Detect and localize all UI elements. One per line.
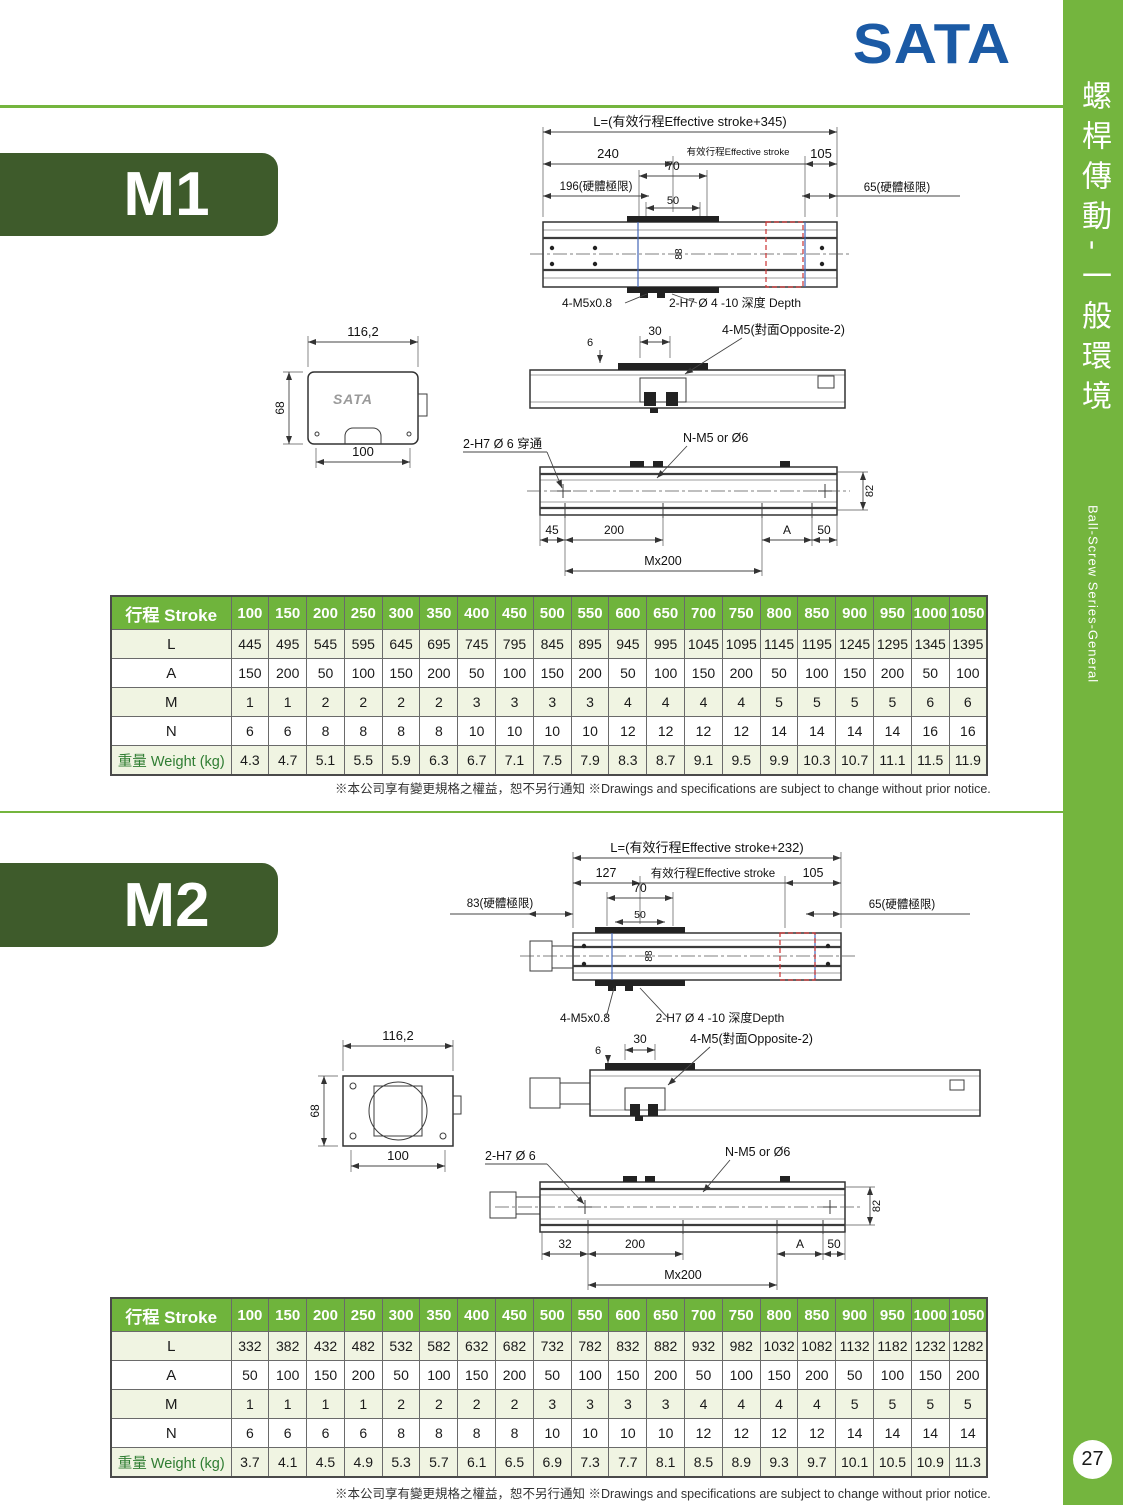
table-cell: 200	[798, 1361, 836, 1390]
table-cell: 100	[874, 1361, 912, 1390]
table-row: A150200501001502005010015020050100150200…	[111, 659, 987, 688]
table-cell: 100	[420, 1361, 458, 1390]
table-cell: 3	[533, 1390, 571, 1419]
m2-spec-table: 行程 Stroke1001502002503003504004505005506…	[110, 1297, 988, 1478]
table-cell: 4.1	[269, 1448, 307, 1478]
table-cell: 1145	[760, 630, 798, 659]
table-cell: 8.1	[647, 1448, 685, 1478]
table-row: 重量 Weight (kg)3.74.14.54.95.35.76.16.56.…	[111, 1448, 987, 1478]
table-cell: 2	[382, 688, 420, 717]
thread-callout: 4-M5x0.8	[560, 1011, 610, 1025]
m2-end-body	[343, 1076, 461, 1146]
table-cell: 895	[571, 630, 609, 659]
table-header-cell: 550	[571, 596, 609, 630]
dim-label: 82	[864, 485, 876, 497]
catalog-page: SATA M1 L=(有效行程Effective stroke+345)	[0, 0, 1123, 1505]
table-header-cell: 450	[496, 1298, 534, 1332]
table-cell: 495	[269, 630, 307, 659]
table-cell: 5	[836, 688, 874, 717]
table-cell: 5	[949, 1390, 987, 1419]
table-cell: 6	[231, 717, 269, 746]
dim-label: 50	[667, 195, 679, 207]
dim-label: 68	[308, 1104, 322, 1118]
table-cell: 745	[458, 630, 496, 659]
table-cell: 1182	[874, 1332, 912, 1361]
table-cell: 4.9	[344, 1448, 382, 1478]
m1-side-view-drawing: 6 30 4-M5(對面Opposite-2)	[500, 318, 970, 430]
table-cell: 6	[307, 1419, 345, 1448]
table-cell: 50	[836, 1361, 874, 1390]
row-label: A	[111, 1361, 231, 1390]
m1-front-body	[530, 216, 850, 298]
table-cell: 6.1	[458, 1448, 496, 1478]
m2-side-view-drawing: 6 30 4-M5(對面Opposite-2)	[520, 1030, 990, 1140]
hole-callout: 2-H7 Ø 4 -10 深度Depth	[656, 1010, 785, 1025]
table-header-cell: 650	[647, 596, 685, 630]
table-cell: 445	[231, 630, 269, 659]
table-cell: 10	[647, 1419, 685, 1448]
table-cell: 1232	[911, 1332, 949, 1361]
hole-callout: 2-H7 Ø 6	[485, 1149, 536, 1163]
table-cell: 2	[420, 688, 458, 717]
table-cell: 2	[344, 688, 382, 717]
table-cell: 200	[344, 1361, 382, 1390]
table-cell: 432	[307, 1332, 345, 1361]
table-cell: 10	[533, 1419, 571, 1448]
table-header-cell: 650	[647, 1298, 685, 1332]
table-cell: 5	[760, 688, 798, 717]
table-cell: 7.3	[571, 1448, 609, 1478]
table-cell: 100	[647, 659, 685, 688]
table-cell: 6	[344, 1419, 382, 1448]
row-label: N	[111, 1419, 231, 1448]
table-cell: 545	[307, 630, 345, 659]
table-cell: 50	[609, 659, 647, 688]
table-header-cell: 750	[722, 596, 760, 630]
table-cell: 14	[874, 1419, 912, 1448]
table-cell: 4	[609, 688, 647, 717]
hole-callout: N-M5 or Ø6	[683, 431, 748, 445]
table-cell: 8	[458, 1419, 496, 1448]
dim-label: 50	[634, 909, 646, 921]
table-cell: 7.5	[533, 746, 571, 776]
table-header-cell: 300	[382, 1298, 420, 1332]
dim-label: Mx200	[664, 1268, 702, 1282]
m2-end-dimensions: 116,2 68 100	[308, 1028, 453, 1172]
table-cell: 4	[798, 1390, 836, 1419]
row-label: M	[111, 1390, 231, 1419]
table-cell: 50	[382, 1361, 420, 1390]
table-cell: 4	[760, 1390, 798, 1419]
table-cell: 100	[722, 1361, 760, 1390]
table-header-cell: 1050	[949, 1298, 987, 1332]
table-cell: 7.7	[609, 1448, 647, 1478]
table-cell: 200	[722, 659, 760, 688]
dim-label: 105	[803, 866, 824, 880]
table-cell: 12	[760, 1419, 798, 1448]
table-cell: 1	[269, 1390, 307, 1419]
table-cell: 732	[533, 1332, 571, 1361]
table-cell: 14	[911, 1419, 949, 1448]
table-cell: 1195	[798, 630, 836, 659]
table-cell: 16	[949, 717, 987, 746]
table-header-cell: 850	[798, 1298, 836, 1332]
dim-label: 65(硬體極限)	[869, 897, 936, 911]
table-header-cell: 900	[836, 1298, 874, 1332]
model-badge-m2: M2	[0, 863, 278, 947]
thread-callout: 4-M5(對面Opposite-2)	[690, 1032, 813, 1046]
table-cell: 6.5	[496, 1448, 534, 1478]
model-badge-m1: M1	[0, 153, 278, 236]
table-cell: 150	[836, 659, 874, 688]
dim-label: 100	[352, 444, 374, 459]
table-header-cell: 900	[836, 596, 874, 630]
table-cell: 8.9	[722, 1448, 760, 1478]
table-header-label: 行程 Stroke	[111, 1298, 231, 1332]
table-cell: 200	[874, 659, 912, 688]
table-cell: 7.9	[571, 746, 609, 776]
table-row: N6688881010101012121212141414141616	[111, 717, 987, 746]
table-cell: 3	[496, 688, 534, 717]
table-cell: 9.9	[760, 746, 798, 776]
table-cell: 4	[722, 1390, 760, 1419]
table-cell: 1395	[949, 630, 987, 659]
m1-bottom-body	[527, 461, 850, 518]
table-cell: 2	[307, 688, 345, 717]
table-cell: 1	[344, 1390, 382, 1419]
table-cell: 3	[533, 688, 571, 717]
table-header-row: 行程 Stroke1001502002503003504004505005506…	[111, 596, 987, 630]
embossed-logo: SATA	[333, 391, 373, 407]
table-cell: 8	[420, 1419, 458, 1448]
dim-label: L=(有效行程Effective stroke+345)	[593, 114, 786, 129]
table-cell: 100	[798, 659, 836, 688]
table-header-cell: 700	[685, 1298, 723, 1332]
table-cell: 50	[760, 659, 798, 688]
table-cell: 2	[382, 1390, 420, 1419]
table-cell: 5.1	[307, 746, 345, 776]
table-cell: 50	[685, 1361, 723, 1390]
table-cell: 845	[533, 630, 571, 659]
table-cell: 200	[496, 1361, 534, 1390]
header-rule	[0, 105, 1063, 108]
table-cell: 50	[911, 659, 949, 688]
dim-label: 70	[633, 881, 647, 895]
table-header-cell: 700	[685, 596, 723, 630]
table-cell: 632	[458, 1332, 496, 1361]
dim-label: 200	[625, 1237, 645, 1251]
page-number-badge: 27	[1073, 1440, 1112, 1479]
table-cell: 10.1	[836, 1448, 874, 1478]
table-cell: 50	[458, 659, 496, 688]
table-header-cell: 250	[344, 596, 382, 630]
table-cell: 6.7	[458, 746, 496, 776]
table-cell: 4	[722, 688, 760, 717]
table-cell: 3	[647, 1390, 685, 1419]
table-cell: 10	[496, 717, 534, 746]
dim-label: L=(有效行程Effective stroke+232)	[610, 840, 803, 855]
dim-label: 116,2	[382, 1028, 414, 1043]
dim-label: 50	[827, 1237, 841, 1251]
table-header-cell: 1050	[949, 596, 987, 630]
table-header-cell: 1000	[911, 596, 949, 630]
table-cell: 6.9	[533, 1448, 571, 1478]
dim-label: 65(硬體極限)	[864, 180, 931, 194]
table-cell: 8	[344, 717, 382, 746]
table-cell: 5	[874, 688, 912, 717]
table-cell: 10.3	[798, 746, 836, 776]
table-cell: 8	[382, 717, 420, 746]
table-row: 重量 Weight (kg)4.34.75.15.55.96.36.77.17.…	[111, 746, 987, 776]
table-cell: 982	[722, 1332, 760, 1361]
m1-front-view-drawing: L=(有效行程Effective stroke+345) 240 有效行程Eff…	[435, 112, 975, 312]
table-cell: 100	[269, 1361, 307, 1390]
dim-label: 116,2	[347, 324, 379, 339]
thread-callout: 4-M5(對面Opposite-2)	[722, 323, 845, 337]
table-cell: 10	[571, 1419, 609, 1448]
table-cell: 832	[609, 1332, 647, 1361]
table-cell: 5.5	[344, 746, 382, 776]
table-cell: 200	[647, 1361, 685, 1390]
table-header-cell: 350	[420, 1298, 458, 1332]
table-cell: 482	[344, 1332, 382, 1361]
table-row: M11112222333344445555	[111, 1390, 987, 1419]
table-cell: 9.5	[722, 746, 760, 776]
table-header-cell: 950	[874, 596, 912, 630]
table-row: M11222233334444555566	[111, 688, 987, 717]
dim-label: Mx200	[644, 554, 682, 568]
table-cell: 932	[685, 1332, 723, 1361]
m1-bottom-dimensions: 2-H7 Ø 6 穿通 N-M5 or Ø6 45 200 A 50 Mx200…	[463, 431, 876, 576]
table-cell: 200	[269, 659, 307, 688]
table-cell: 12	[685, 1419, 723, 1448]
table-cell: 16	[911, 717, 949, 746]
table-cell: 795	[496, 630, 534, 659]
table-header-cell: 950	[874, 1298, 912, 1332]
side-tab: 螺桿傳動-一般環境 Ball-Screw Series-General 27	[1063, 0, 1123, 1505]
table-header-cell: 400	[458, 1298, 496, 1332]
hole-callout: 2-H7 Ø 6 穿通	[463, 436, 543, 451]
table-cell: 6	[911, 688, 949, 717]
table-cell: 1032	[760, 1332, 798, 1361]
table-cell: 5.7	[420, 1448, 458, 1478]
table-cell: 1282	[949, 1332, 987, 1361]
table-cell: 10	[571, 717, 609, 746]
table-header-cell: 600	[609, 596, 647, 630]
row-label: N	[111, 717, 231, 746]
table-cell: 882	[647, 1332, 685, 1361]
table-cell: 50	[307, 659, 345, 688]
table-cell: 532	[382, 1332, 420, 1361]
row-label: A	[111, 659, 231, 688]
dim-label: A	[796, 1237, 804, 1251]
table-cell: 1082	[798, 1332, 836, 1361]
table-cell: 8.5	[685, 1448, 723, 1478]
table-header-cell: 600	[609, 1298, 647, 1332]
table-cell: 1	[307, 1390, 345, 1419]
table-cell: 11.3	[949, 1448, 987, 1478]
table-cell: 8	[420, 717, 458, 746]
table-cell: 1345	[911, 630, 949, 659]
table-cell: 150	[533, 659, 571, 688]
table-cell: 12	[798, 1419, 836, 1448]
table-cell: 595	[344, 630, 382, 659]
table-cell: 382	[269, 1332, 307, 1361]
dim-label: 32	[558, 1237, 572, 1251]
table-cell: 4.3	[231, 746, 269, 776]
table-cell: 6.3	[420, 746, 458, 776]
table-cell: 5.9	[382, 746, 420, 776]
table-header-cell: 800	[760, 596, 798, 630]
table-cell: 1245	[836, 630, 874, 659]
table-cell: 3.7	[231, 1448, 269, 1478]
table-cell: 5	[836, 1390, 874, 1419]
table-cell: 150	[231, 659, 269, 688]
dim-label: 83(硬體極限)	[467, 896, 534, 910]
table-cell: 14	[798, 717, 836, 746]
table-header-cell: 200	[307, 596, 345, 630]
table-header-cell: 1000	[911, 1298, 949, 1332]
dim-label: A	[783, 523, 791, 537]
table-cell: 682	[496, 1332, 534, 1361]
dim-label: 30	[648, 324, 662, 338]
table-cell: 4	[685, 1390, 723, 1419]
table-cell: 4	[647, 688, 685, 717]
table-cell: 11.9	[949, 746, 987, 776]
table-header-cell: 750	[722, 1298, 760, 1332]
table-cell: 5	[798, 688, 836, 717]
table-header-cell: 100	[231, 596, 269, 630]
thread-callout: 4-M5x0.8	[562, 296, 612, 310]
table-cell: 12	[609, 717, 647, 746]
table-cell: 100	[571, 1361, 609, 1390]
dim-label: 50	[817, 523, 831, 537]
table-cell: 6	[269, 1419, 307, 1448]
table-header-cell: 450	[496, 596, 534, 630]
table-cell: 8	[382, 1419, 420, 1448]
table-row: L445495545595645695745795845895945995104…	[111, 630, 987, 659]
dim-label: 68	[273, 401, 287, 415]
table-header-cell: 500	[533, 596, 571, 630]
table-cell: 8	[496, 1419, 534, 1448]
sata-logo: SATA	[842, 10, 1022, 78]
table-header-cell: 500	[533, 1298, 571, 1332]
table-cell: 12	[722, 1419, 760, 1448]
table-cell: 8	[307, 717, 345, 746]
table-cell: 10	[533, 717, 571, 746]
table-header-cell: 350	[420, 596, 458, 630]
table-header-cell: 400	[458, 596, 496, 630]
dim-label: 有效行程Effective stroke	[651, 866, 775, 880]
row-label: L	[111, 1332, 231, 1361]
m2-side-dimensions: 6 30 4-M5(對面Opposite-2)	[595, 1032, 813, 1085]
dim-label: 82	[871, 1200, 883, 1212]
disclaimer-note: ※本公司享有變更規格之權益，恕不另行通知 ※Drawings and speci…	[335, 1483, 995, 1502]
dim-label: 127	[596, 866, 617, 880]
dim-label: 105	[810, 146, 832, 161]
dim-label: 70	[666, 159, 680, 173]
table-cell: 200	[420, 659, 458, 688]
table-cell: 6	[269, 717, 307, 746]
table-cell: 11.1	[874, 746, 912, 776]
table-cell: 14	[836, 717, 874, 746]
table-cell: 7.1	[496, 746, 534, 776]
m2-bottom-view-drawing: 2-H7 Ø 6 N-M5 or Ø6 32 200 A 50 Mx200 82	[435, 1142, 975, 1307]
table-header-cell: 200	[307, 1298, 345, 1332]
table-header-cell: 800	[760, 1298, 798, 1332]
table-cell: 12	[647, 717, 685, 746]
m1-front-dimensions: L=(有效行程Effective stroke+345) 240 有效行程Eff…	[543, 114, 960, 310]
table-cell: 14	[949, 1419, 987, 1448]
table-cell: 12	[685, 717, 723, 746]
table-cell: 695	[420, 630, 458, 659]
table-cell: 1132	[836, 1332, 874, 1361]
table-cell: 50	[533, 1361, 571, 1390]
table-cell: 150	[685, 659, 723, 688]
table-cell: 4	[685, 688, 723, 717]
table-cell: 2	[458, 1390, 496, 1419]
table-cell: 1	[231, 1390, 269, 1419]
table-cell: 150	[458, 1361, 496, 1390]
table-cell: 10	[609, 1419, 647, 1448]
table-cell: 10.7	[836, 746, 874, 776]
section-divider	[0, 811, 1063, 813]
table-header-row: 行程 Stroke1001502002503003504004505005506…	[111, 1298, 987, 1332]
table-cell: 9.3	[760, 1448, 798, 1478]
dim-label: 196(硬體極限)	[560, 179, 633, 193]
table-cell: 10.5	[874, 1448, 912, 1478]
table-cell: 14	[874, 717, 912, 746]
table-cell: 2	[496, 1390, 534, 1419]
row-label: 重量 Weight (kg)	[111, 746, 231, 776]
dim-label: 6	[587, 337, 593, 349]
table-cell: 6	[231, 1419, 269, 1448]
table-header-cell: 850	[798, 596, 836, 630]
table-cell: 12	[722, 717, 760, 746]
table-cell: 3	[571, 1390, 609, 1419]
table-cell: 200	[571, 659, 609, 688]
table-cell: 1	[269, 688, 307, 717]
table-cell: 5.3	[382, 1448, 420, 1478]
dim-label: 88	[644, 950, 655, 962]
table-header-cell: 550	[571, 1298, 609, 1332]
table-cell: 5	[911, 1390, 949, 1419]
table-cell: 1	[231, 688, 269, 717]
table-cell: 945	[609, 630, 647, 659]
table-cell: 4.5	[307, 1448, 345, 1478]
table-header-cell: 300	[382, 596, 420, 630]
table-header-cell: 150	[269, 1298, 307, 1332]
table-cell: 582	[420, 1332, 458, 1361]
table-cell: 3	[458, 688, 496, 717]
dim-label: 30	[633, 1032, 647, 1046]
table-cell: 1095	[722, 630, 760, 659]
table-cell: 3	[609, 1390, 647, 1419]
table-cell: 14	[760, 717, 798, 746]
table-header-cell: 250	[344, 1298, 382, 1332]
table-cell: 995	[647, 630, 685, 659]
table-cell: 8.3	[609, 746, 647, 776]
m1-end-body: SATA	[308, 372, 427, 444]
table-cell: 9.7	[798, 1448, 836, 1478]
m2-front-body	[520, 927, 855, 991]
m2-bottom-dimensions: 2-H7 Ø 6 N-M5 or Ø6 32 200 A 50 Mx200 82	[485, 1145, 883, 1290]
table-cell: 8.7	[647, 746, 685, 776]
table-row: A501001502005010015020050100150200501001…	[111, 1361, 987, 1390]
m2-front-view-drawing: L=(有效行程Effective stroke+232) 127 有效行程Eff…	[430, 838, 990, 1028]
hole-callout: N-M5 or Ø6	[725, 1145, 790, 1159]
m2-side-body	[530, 1063, 980, 1121]
